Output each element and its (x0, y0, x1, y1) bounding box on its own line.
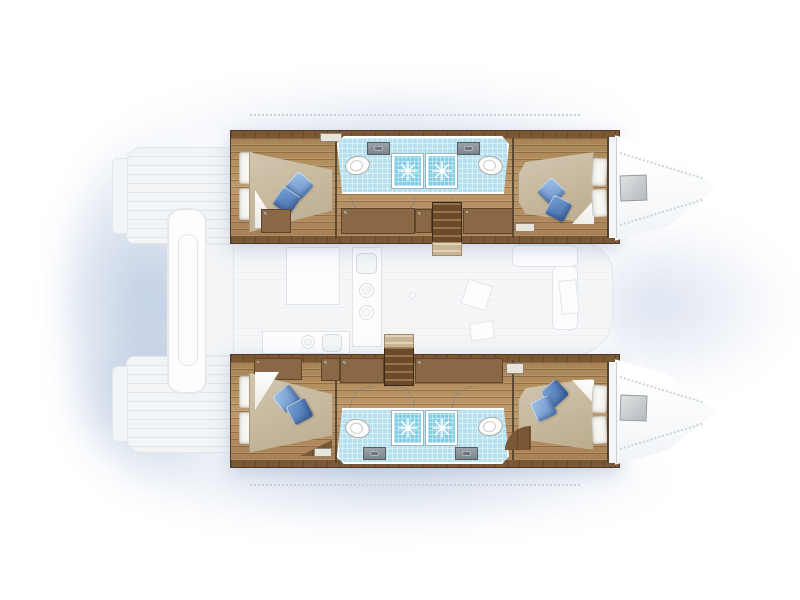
transom-step-port (112, 158, 128, 234)
aft-galley-sink-icon (322, 334, 342, 352)
bulkhead (512, 138, 514, 238)
stove-burner-icon (359, 305, 374, 320)
catamaran-floor-plan (0, 0, 800, 600)
hanging-lockers (416, 359, 502, 382)
vent-icon (506, 363, 524, 374)
mast-foot (409, 292, 416, 299)
hanging-lockers (464, 209, 512, 233)
lifeline-starboard (250, 484, 580, 486)
lifeline-port (250, 114, 580, 116)
transom-step-starboard (112, 366, 128, 442)
stairs-landing (433, 243, 461, 255)
companionway-stairs-port (433, 203, 461, 243)
saloon-sofa-back (512, 245, 578, 267)
forepeak-bulkhead (607, 137, 617, 238)
pillow (591, 189, 607, 218)
bridgedeck-ghost (205, 244, 235, 356)
dinghy (178, 234, 198, 366)
washbasin (457, 142, 480, 155)
locker (416, 210, 431, 232)
lounge-cushion (469, 320, 495, 341)
washbasin (455, 447, 478, 460)
bulkhead (335, 135, 337, 239)
shower-spray-icon (432, 418, 452, 438)
shower-tray (392, 411, 423, 445)
shower-spray-icon (398, 161, 418, 181)
pillow (591, 385, 607, 414)
companionway-stairs-starboard (385, 347, 413, 385)
shower-tray (426, 154, 457, 188)
galley-cabinet (286, 247, 340, 305)
bow-hatch-icon (620, 175, 648, 202)
vent-icon (320, 133, 342, 142)
saloon-table (558, 279, 579, 315)
locker (322, 359, 339, 380)
shower-spray-icon (398, 418, 418, 438)
shower-tray (392, 154, 423, 188)
pillow (591, 416, 608, 445)
locker (262, 210, 290, 232)
bow-hatch-icon (620, 395, 648, 422)
shower-spray-icon (432, 161, 452, 181)
hanging-lockers (341, 359, 383, 382)
stove-burner-icon (301, 335, 315, 349)
forepeak-bulkhead (607, 362, 617, 463)
washbasin (367, 142, 390, 155)
hanging-lockers (342, 209, 414, 233)
stairs-landing (385, 335, 413, 347)
pillow (591, 158, 608, 187)
stove-burner-icon (359, 283, 374, 298)
galley-sink-icon (356, 253, 377, 274)
hull-inboard-trim (231, 236, 619, 243)
vent-icon (515, 223, 535, 232)
washbasin (363, 447, 386, 460)
vent-icon (314, 448, 332, 457)
shower-tray (426, 411, 457, 445)
